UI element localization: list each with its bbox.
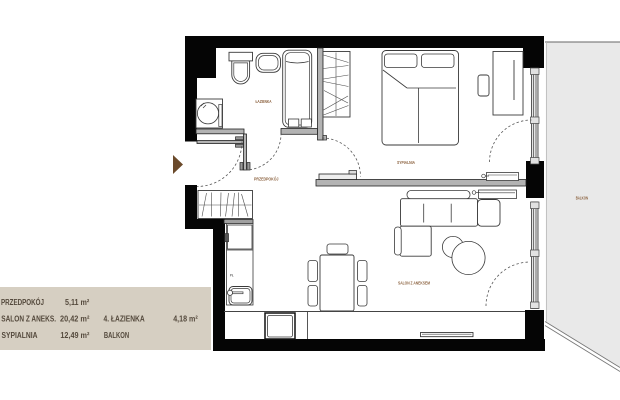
svg-text:BALKON: BALKON [576,195,589,200]
svg-text:ŁAZIENKA: ŁAZIENKA [256,99,272,104]
svg-text:1. PRZEDPOKÓJ: 1. PRZEDPOKÓJ [0,298,44,307]
svg-text:20,42 m²: 20,42 m² [60,314,90,323]
svg-text:PRZEDPOKÓJ: PRZEDPOKÓJ [254,174,279,181]
svg-text:PŁ: PŁ [230,273,234,277]
svg-text:2. SALON Z ANEKS.: 2. SALON Z ANEKS. [0,314,56,323]
svg-text:SYPIALNIA: SYPIALNIA [397,160,415,165]
svg-text:5,11 m²: 5,11 m² [65,298,90,307]
svg-text:4. ŁAZIENKA: 4. ŁAZIENKA [104,314,145,323]
svg-text:SALON Z ANEKSEM: SALON Z ANEKSEM [398,281,430,286]
svg-text:BALKON: BALKON [104,331,129,340]
svg-text:3. SYPIALNIA: 3. SYPIALNIA [0,331,38,340]
svg-text:4,18 m²: 4,18 m² [173,314,198,323]
svg-text:12,49 m²: 12,49 m² [60,331,89,340]
